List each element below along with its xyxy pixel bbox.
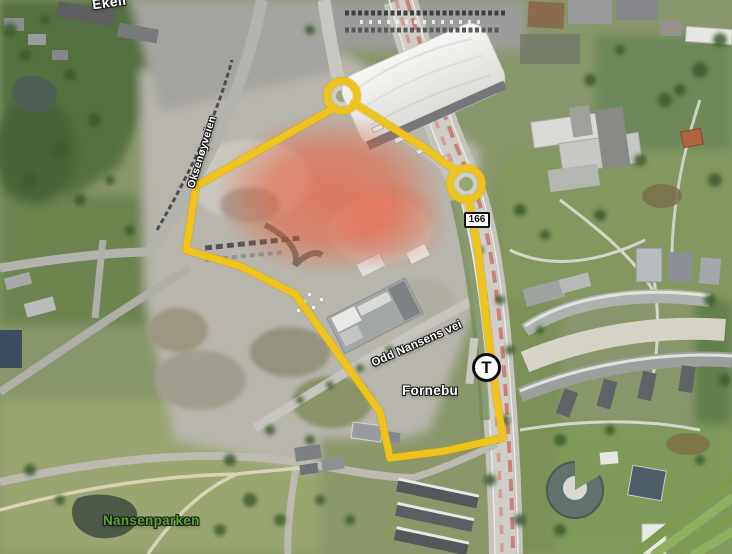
place-label-nansenparken: Nansenparken [103, 513, 200, 528]
orange-roof-building [681, 128, 703, 147]
metro-station-marker: T [472, 353, 501, 382]
place-label-fornebu: Fornebu [402, 383, 458, 398]
marsh-pond-south [666, 433, 710, 455]
road-sign-166: 166 [464, 212, 490, 228]
satellite-map[interactable]: Ekeli Oksenøyveien Odd Nansens vei Forne… [0, 0, 732, 554]
satellite-basemap [0, 0, 732, 554]
marsh-pond [642, 184, 682, 208]
